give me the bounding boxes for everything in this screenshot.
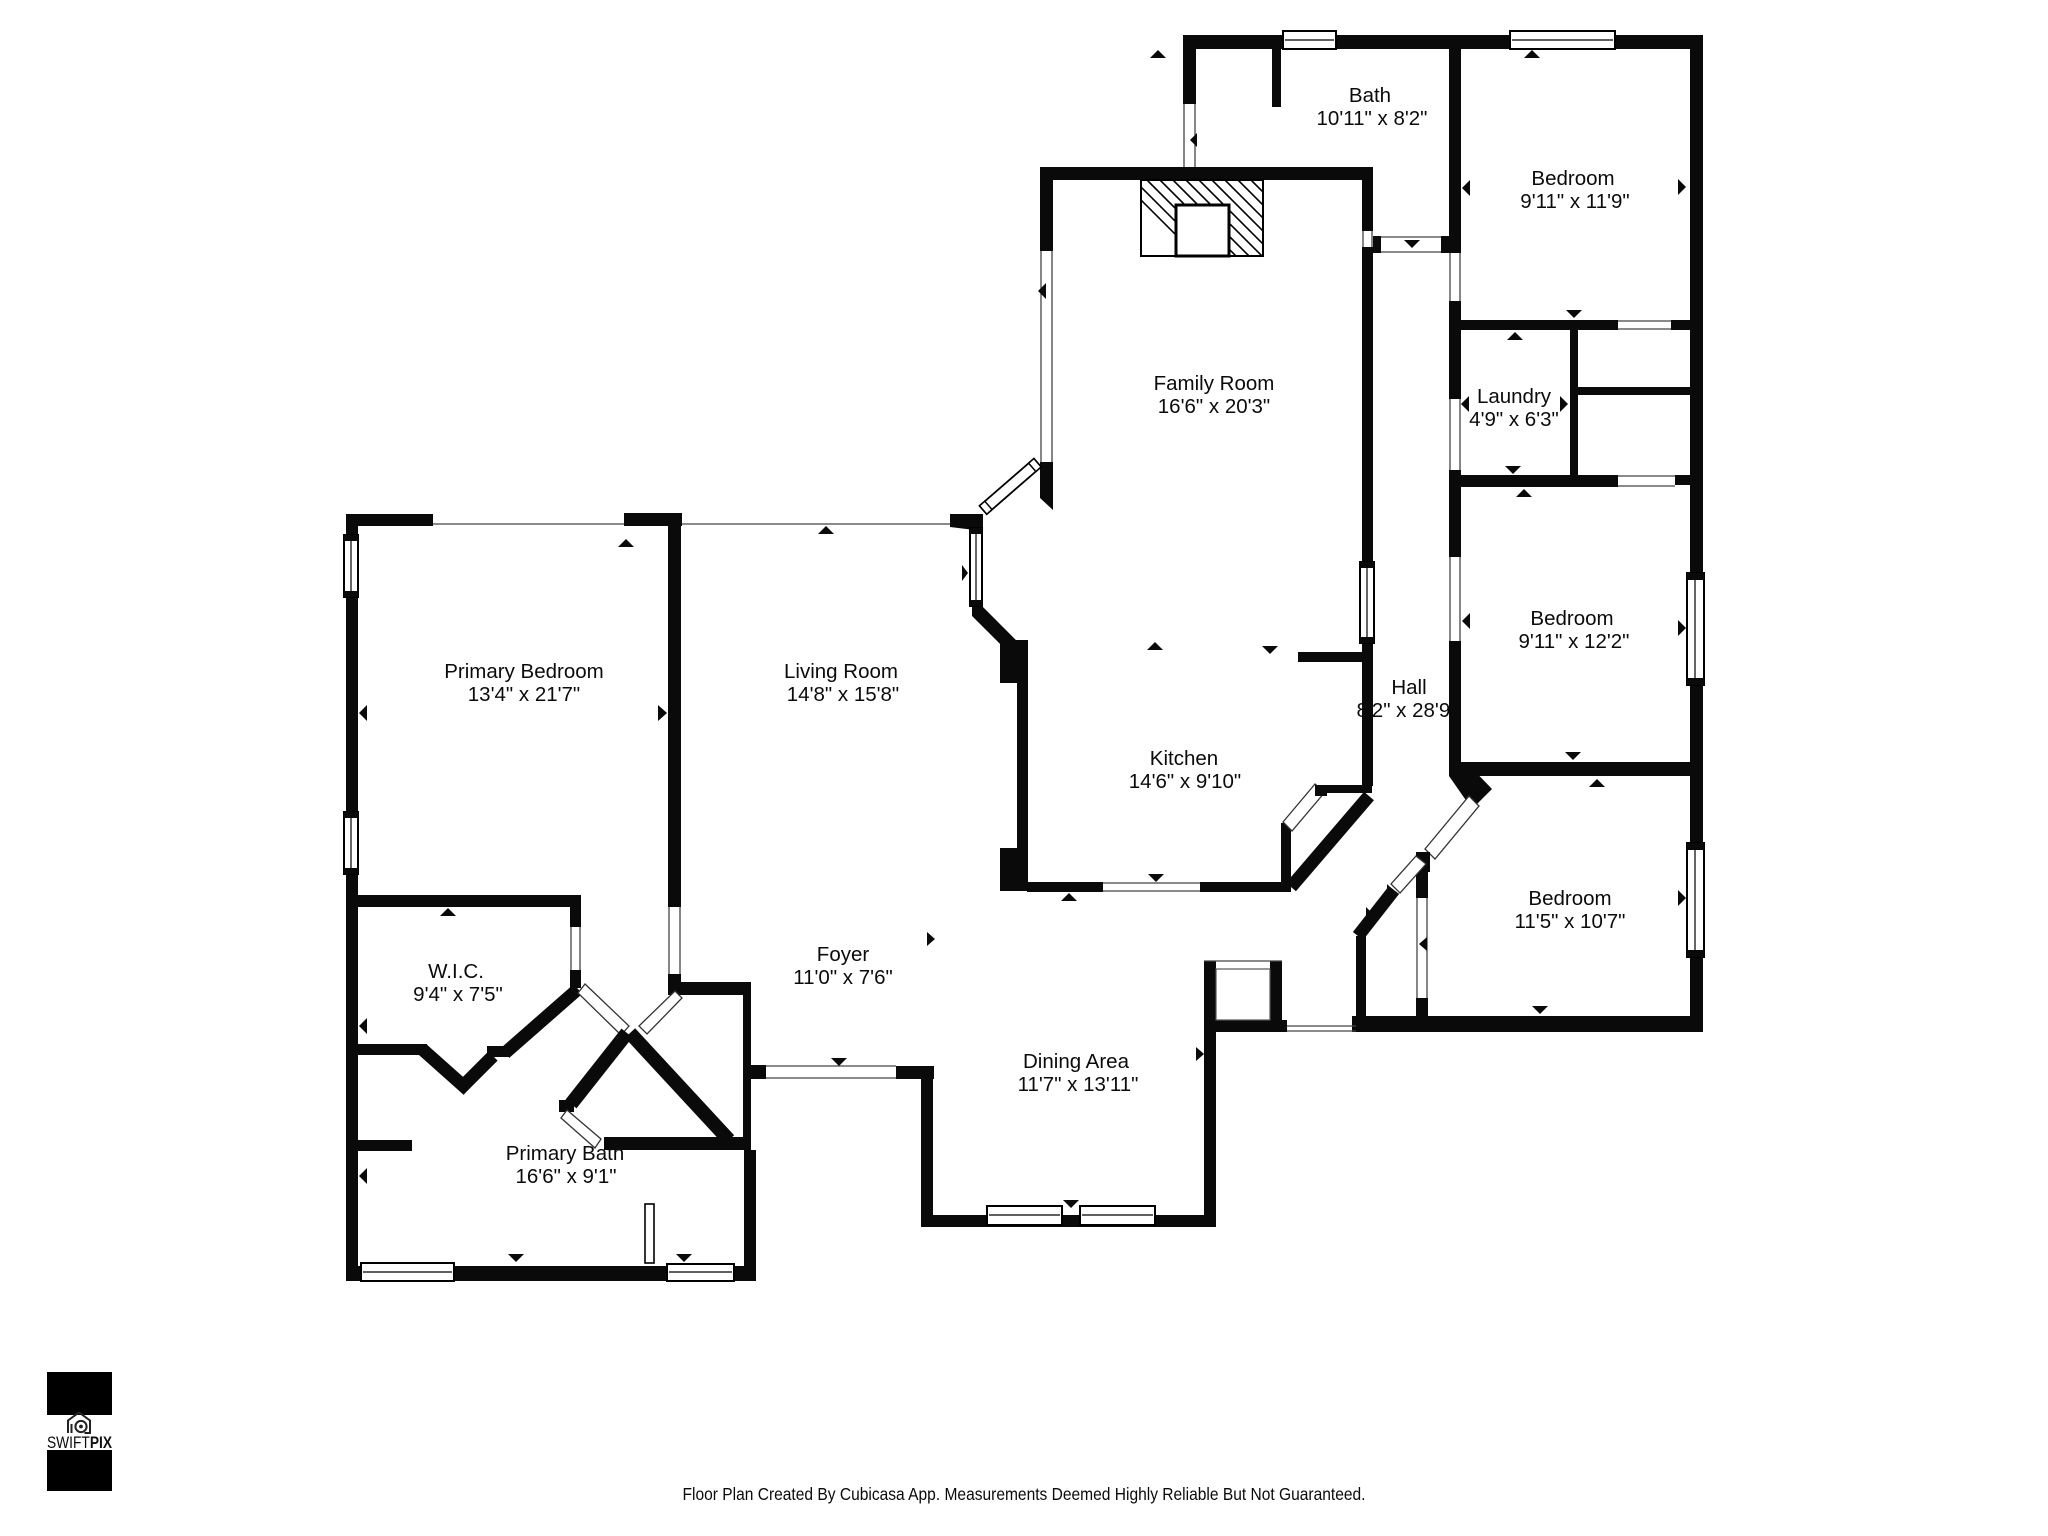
svg-text:14'6" x 9'10": 14'6" x 9'10" <box>1129 770 1241 793</box>
svg-text:4'9" x 6'3": 4'9" x 6'3" <box>1469 408 1559 431</box>
svg-text:Dining Area: Dining Area <box>1023 1050 1130 1073</box>
svg-text:Living Room: Living Room <box>784 660 898 683</box>
svg-text:9'11" x 11'9": 9'11" x 11'9" <box>1520 190 1629 213</box>
svg-text:Kitchen: Kitchen <box>1150 747 1218 770</box>
svg-text:Hall: Hall <box>1391 676 1426 699</box>
svg-text:10'11" x 8'2": 10'11" x 8'2" <box>1317 107 1428 130</box>
svg-text:11'5" x 10'7": 11'5" x 10'7" <box>1515 910 1626 933</box>
svg-text:11'7" x 13'11": 11'7" x 13'11" <box>1018 1073 1139 1096</box>
svg-text:9'11" x 12'2": 9'11" x 12'2" <box>1519 630 1630 653</box>
svg-text:Foyer: Foyer <box>817 943 870 966</box>
svg-text:Family Room: Family Room <box>1154 372 1275 395</box>
svg-text:Bedroom: Bedroom <box>1531 167 1614 190</box>
svg-text:Floor Plan Created By Cubicasa: Floor Plan Created By Cubicasa App. Meas… <box>683 1484 1366 1504</box>
svg-text:16'6" x 20'3": 16'6" x 20'3" <box>1158 395 1270 418</box>
svg-text:8'2" x 28'9": 8'2" x 28'9" <box>1356 699 1457 722</box>
svg-text:Primary Bath: Primary Bath <box>506 1142 624 1165</box>
svg-text:Bath: Bath <box>1349 84 1391 107</box>
svg-text:Primary Bedroom: Primary Bedroom <box>444 660 604 683</box>
svg-text:16'6" x 9'1": 16'6" x 9'1" <box>515 1165 616 1188</box>
svg-text:11'0" x 7'6": 11'0" x 7'6" <box>793 966 893 989</box>
svg-text:9'4" x 7'5": 9'4" x 7'5" <box>413 983 503 1006</box>
svg-text:Laundry: Laundry <box>1477 385 1552 408</box>
svg-text:Bedroom: Bedroom <box>1530 607 1613 630</box>
svg-text:14'8" x 15'8": 14'8" x 15'8" <box>787 683 899 706</box>
svg-text:SWIFTPIX: SWIFTPIX <box>47 1433 113 1452</box>
svg-text:W.I.C.: W.I.C. <box>428 960 484 983</box>
svg-text:Bedroom: Bedroom <box>1528 887 1611 910</box>
svg-text:13'4" x 21'7": 13'4" x 21'7" <box>468 683 580 706</box>
